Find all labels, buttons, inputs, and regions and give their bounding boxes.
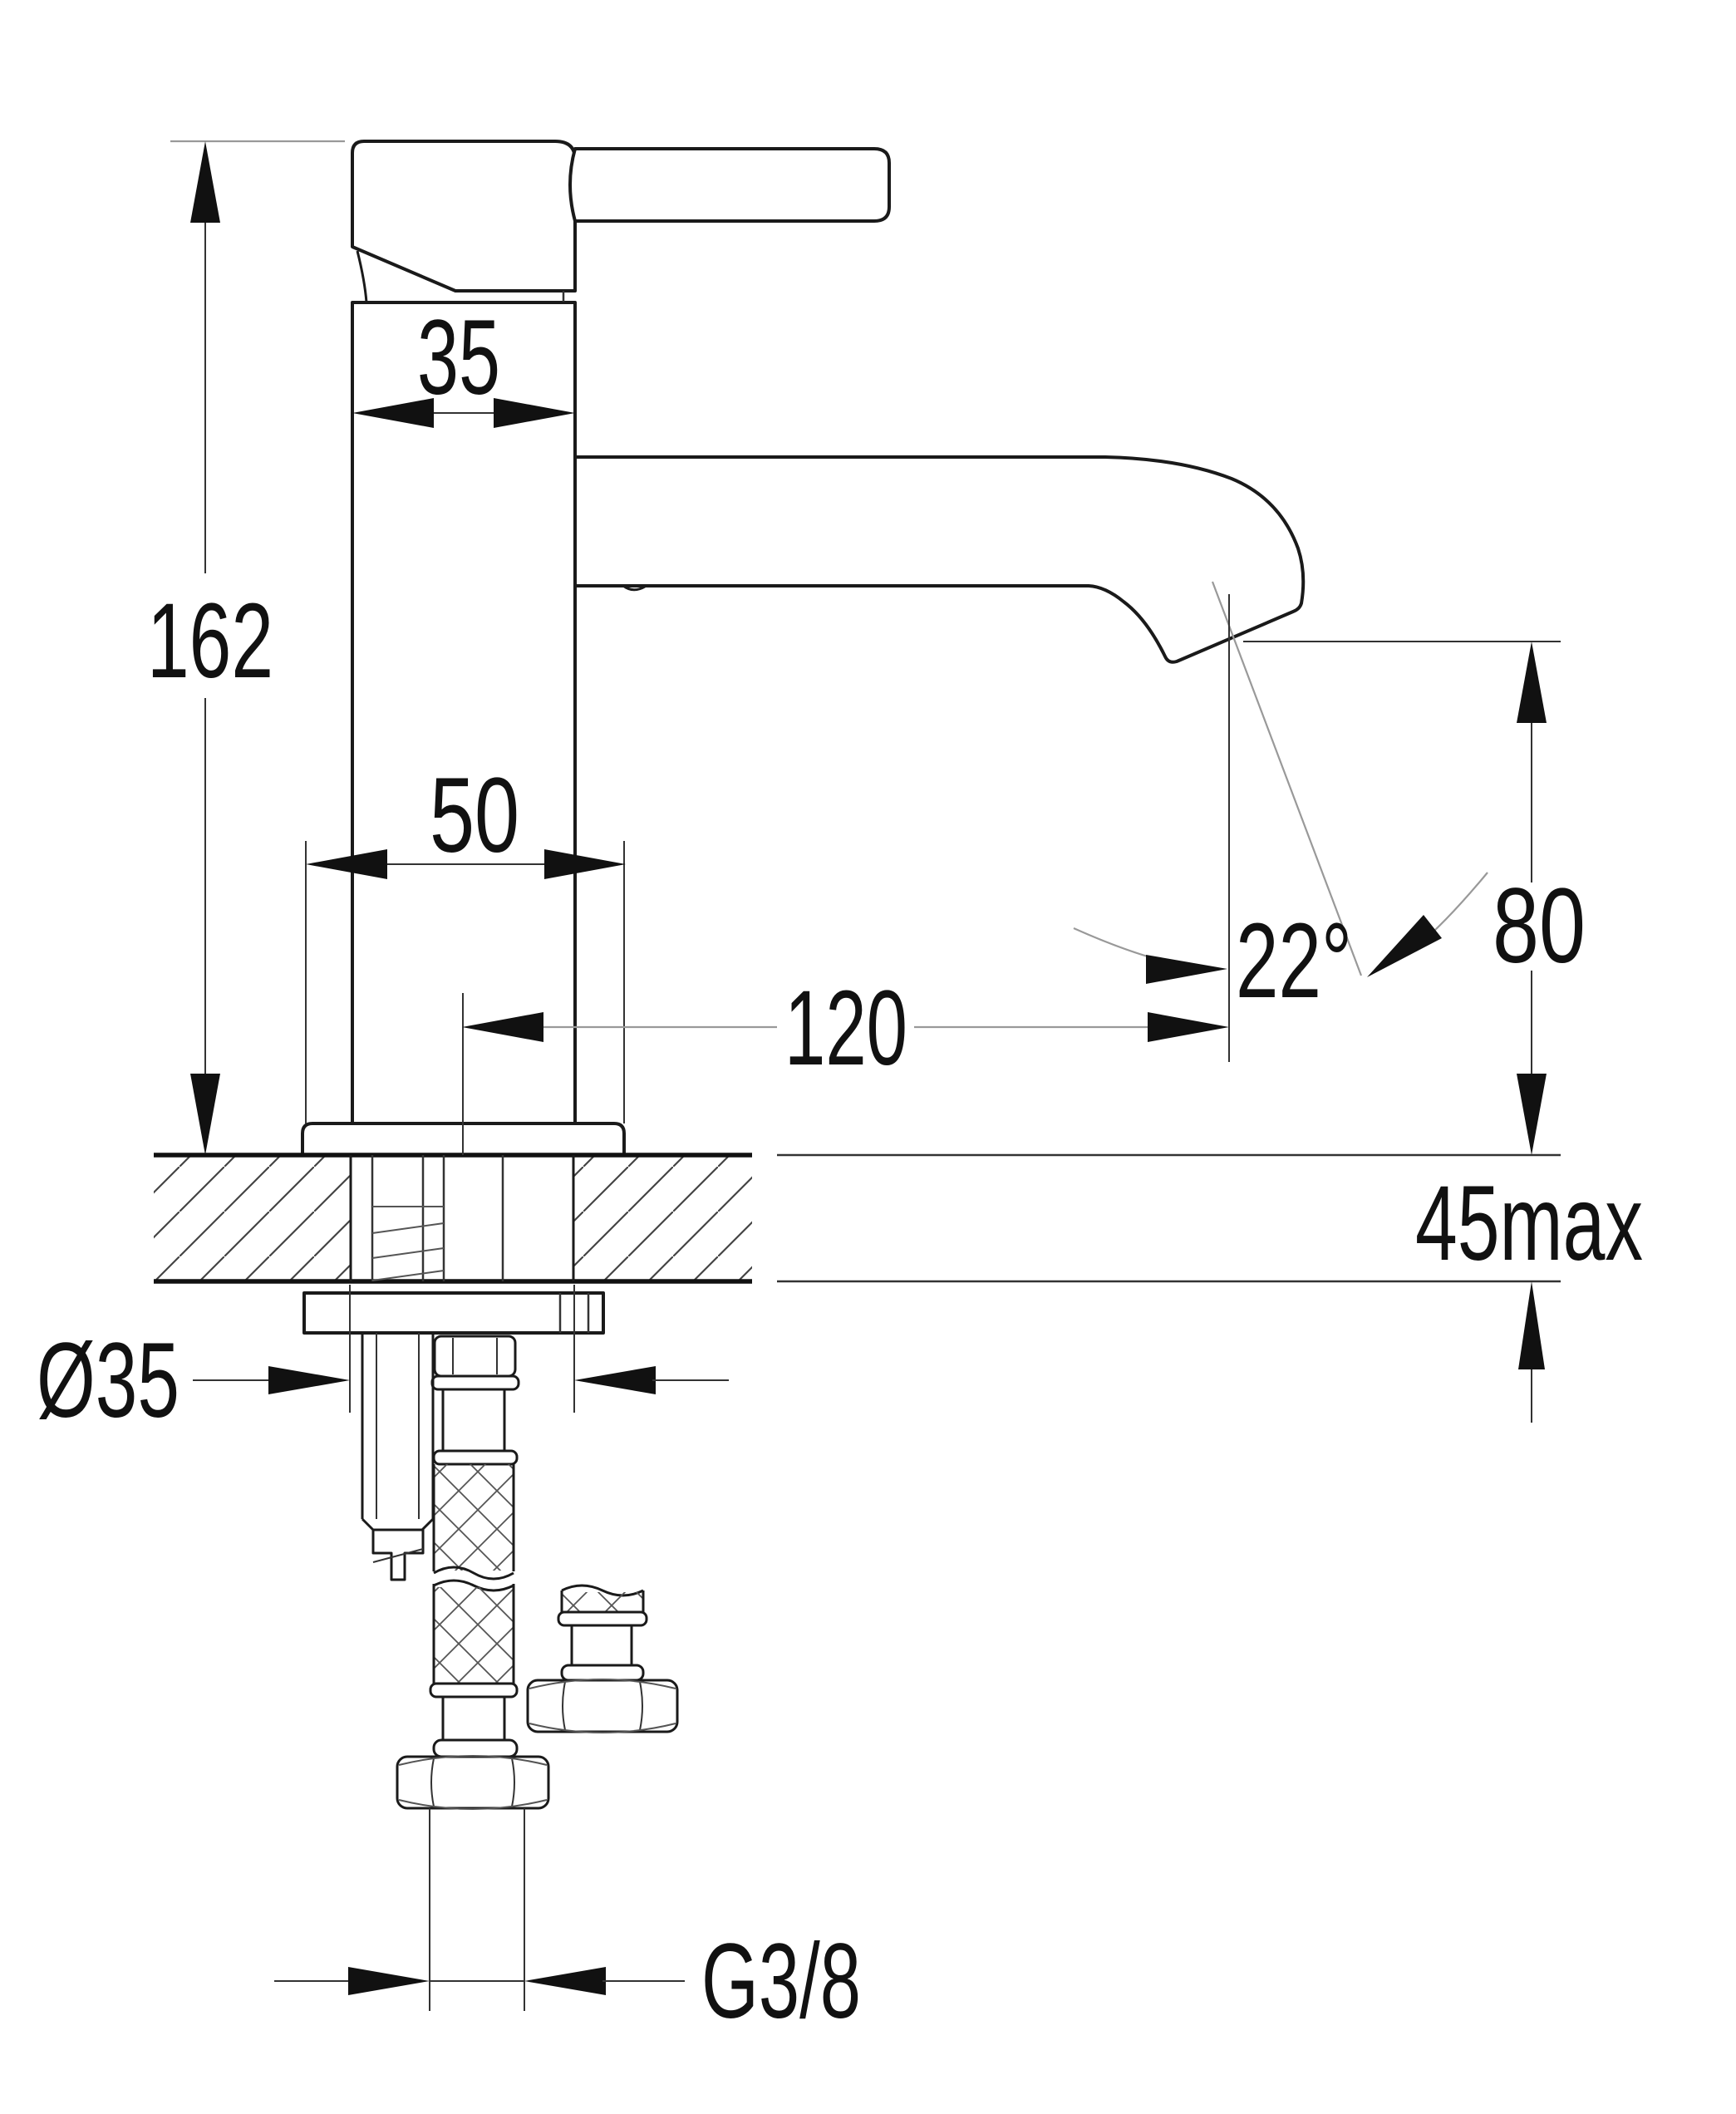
counter-hatch-right [573, 1155, 752, 1281]
dim-label-overall-height: 162 [147, 582, 273, 701]
drawing-page: 35 162 50 120 22° 80 45max Ø35 G3/8 [0, 0, 1736, 2114]
shank-in-hole [372, 1155, 503, 1281]
dim-label-stream-angle: 22° [1236, 902, 1352, 1020]
arrowhead-down [1517, 1074, 1547, 1155]
spout [575, 457, 1303, 662]
dim-label-deck-thickness: 45max [1415, 1164, 1643, 1283]
hose1-end-nut [397, 1757, 548, 1808]
arrowhead-up [1517, 642, 1547, 723]
dimension-thread [274, 1967, 685, 1995]
hose1-braid-lower [434, 1587, 514, 1684]
counter-hatch-left [154, 1155, 351, 1281]
dim-label-thread: G3/8 [701, 1922, 861, 2041]
arrowhead-right [1148, 1012, 1229, 1042]
handle-body [352, 141, 575, 291]
dimension-deck-thickness [1518, 1281, 1545, 1423]
arrowhead-left [524, 1967, 606, 1995]
dim-label-outlet-height: 80 [1493, 867, 1586, 986]
threaded-shank [362, 1333, 433, 1580]
mounting-hardware [304, 1293, 677, 2011]
handle-lever [570, 149, 889, 221]
arrowhead-right [268, 1366, 350, 1394]
hose1-braid-upper [434, 1464, 514, 1571]
handle-body-cheek-line [357, 251, 366, 302]
arrowhead-down-left [1367, 915, 1442, 977]
faucet-technical-drawing: 35 162 50 120 22° 80 45max Ø35 G3/8 [0, 0, 1736, 2114]
supply-hose-2 [528, 1585, 677, 1733]
arrowhead-down [190, 1074, 220, 1155]
arrowhead-right [544, 849, 626, 879]
arrowhead-left [306, 849, 387, 879]
hose2-end-nut [528, 1680, 677, 1732]
arrowhead-right [348, 1967, 430, 1995]
hose1-top-nut [435, 1336, 515, 1376]
arrowhead-right [1146, 955, 1227, 984]
thread-hatch [372, 1207, 444, 1281]
dim-label-body-width: 35 [417, 298, 500, 417]
arrowhead-up [190, 141, 220, 223]
dim-label-base-width: 50 [430, 756, 519, 875]
supply-hose-1 [397, 1336, 548, 1809]
hose2-braid [562, 1592, 643, 1612]
arrowhead-left [574, 1366, 656, 1394]
countertop-section [154, 1155, 1561, 1281]
dim-label-spout-reach: 120 [784, 969, 907, 1088]
arrowhead-up [1518, 1281, 1545, 1369]
dim-label-hole-diameter: Ø35 [37, 1321, 180, 1440]
